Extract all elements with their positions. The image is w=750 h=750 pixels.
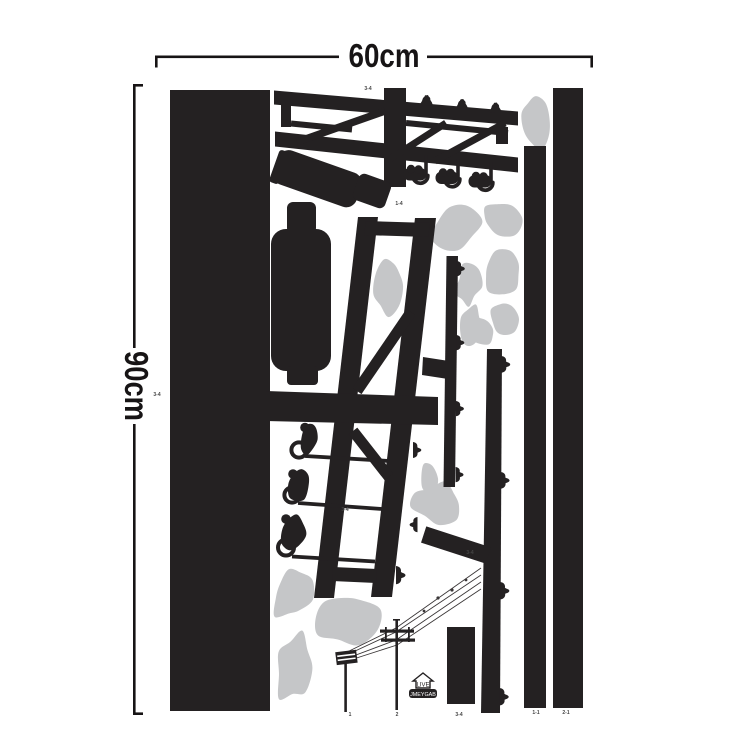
svg-text:1-1: 1-1 bbox=[532, 710, 539, 716]
svg-text:2: 2 bbox=[396, 712, 399, 718]
svg-text:3-4: 3-4 bbox=[455, 712, 462, 718]
svg-text:1: 1 bbox=[349, 712, 352, 718]
svg-text:3-4: 3-4 bbox=[153, 392, 160, 398]
svg-text:JMEYGAB: JMEYGAB bbox=[410, 692, 436, 698]
svg-text:LIVE: LIVE bbox=[416, 683, 429, 689]
svg-text:2-1: 2-1 bbox=[562, 710, 569, 716]
svg-text:3-4: 3-4 bbox=[466, 550, 473, 556]
svg-text:3-4: 3-4 bbox=[341, 507, 348, 513]
svg-text:60cm: 60cm bbox=[349, 37, 420, 74]
svg-text:3-4: 3-4 bbox=[364, 86, 371, 92]
svg-text:1-4: 1-4 bbox=[395, 201, 402, 207]
svg-text:90cm: 90cm bbox=[118, 351, 155, 421]
